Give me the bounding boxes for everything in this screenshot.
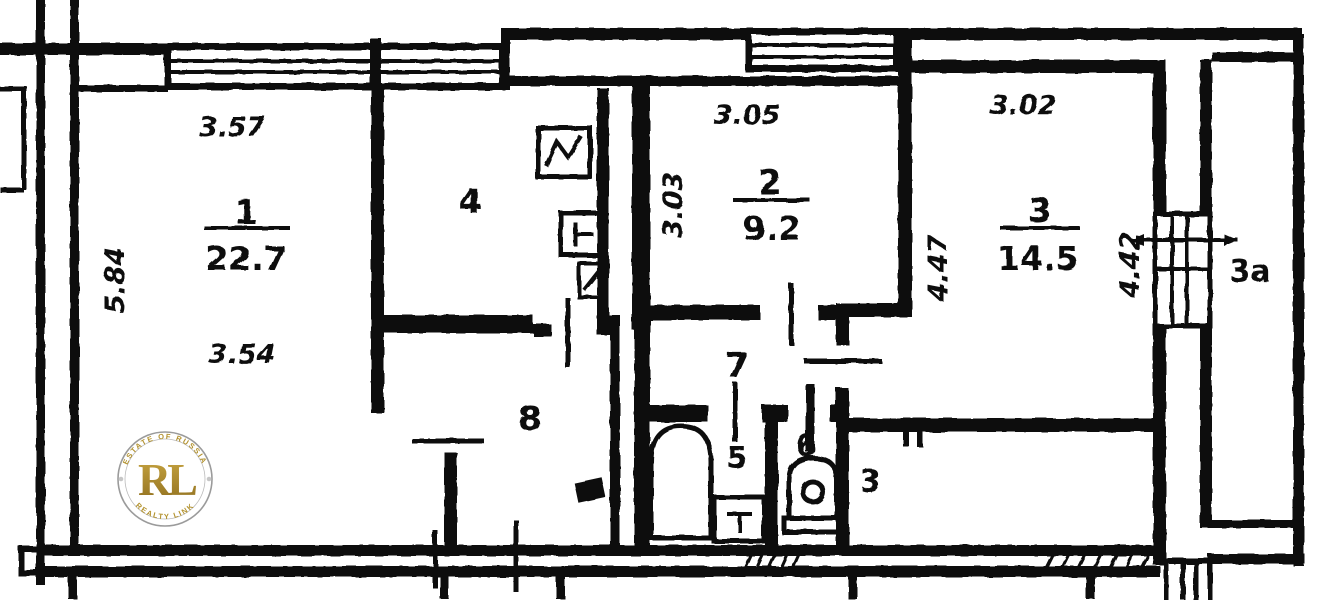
kitchen-sink-tap: [575, 222, 593, 246]
watermark-monogram: RL: [138, 454, 196, 505]
window-room3-loggia: [1130, 214, 1238, 326]
window-mullions: [1155, 214, 1210, 326]
room2-number: 2: [758, 163, 782, 203]
dim-room3-left: 4.47: [923, 234, 954, 302]
room6-number: 6: [796, 429, 817, 464]
toilet-bowl: [789, 458, 837, 518]
bathtub-icon: [651, 426, 711, 538]
room5-number: 5: [727, 441, 748, 476]
toilet-base: [784, 518, 842, 532]
room4-number: 4: [458, 182, 482, 222]
dim-room3-top: 3.02: [990, 90, 1057, 121]
room1-number: 1: [234, 193, 258, 233]
toilet-icon: [784, 458, 842, 532]
floor-plan-svg: 3.57 5.84 1 22.7 3.54 4 3.05 3.03 2 9.2 …: [0, 0, 1342, 600]
room2-area: 9.2: [743, 209, 801, 248]
room3-number: 3: [1028, 191, 1052, 231]
watermark-right-dot-icon: [207, 477, 212, 482]
entrance-door-leaf: [574, 477, 606, 502]
dim-room3-right: 4.42: [1115, 232, 1146, 300]
dim-room1-top: 3.57: [199, 112, 266, 143]
washbasin-icon: [714, 497, 764, 541]
room3-area: 14.5: [997, 239, 1078, 278]
room7-number: 7: [725, 346, 749, 386]
room3-lower-number: 3: [860, 464, 881, 499]
dim-room2-left: 3.03: [658, 172, 689, 239]
watermark-left-dot-icon: [119, 477, 124, 482]
window-bottom-right: [1166, 558, 1210, 600]
left-balcony-outline: [0, 89, 27, 190]
watermark-stamp: RL ESTATE OF RUSSIA REALTY LINK: [118, 432, 212, 526]
dim-room1-left: 5.84: [100, 247, 131, 314]
room8-number: 8: [518, 399, 542, 439]
loggia-3a-number: 3a: [1229, 254, 1270, 289]
window-room2: [745, 28, 901, 72]
dim-room1-bottom: 3.54: [209, 339, 276, 370]
window-room1-kitchen: [164, 38, 507, 116]
toilet-seat: [803, 482, 823, 502]
stove-icon-mark: [546, 136, 581, 166]
washbasin-tap: [727, 514, 752, 533]
counter-icon-mark: [584, 271, 599, 290]
room1-area: 22.7: [205, 239, 286, 278]
kitchen-fixtures: [538, 128, 605, 297]
floor-plan: 3.57 5.84 1 22.7 3.54 4 3.05 3.03 2 9.2 …: [0, 0, 1342, 600]
dim-room2-top: 3.05: [714, 100, 781, 131]
